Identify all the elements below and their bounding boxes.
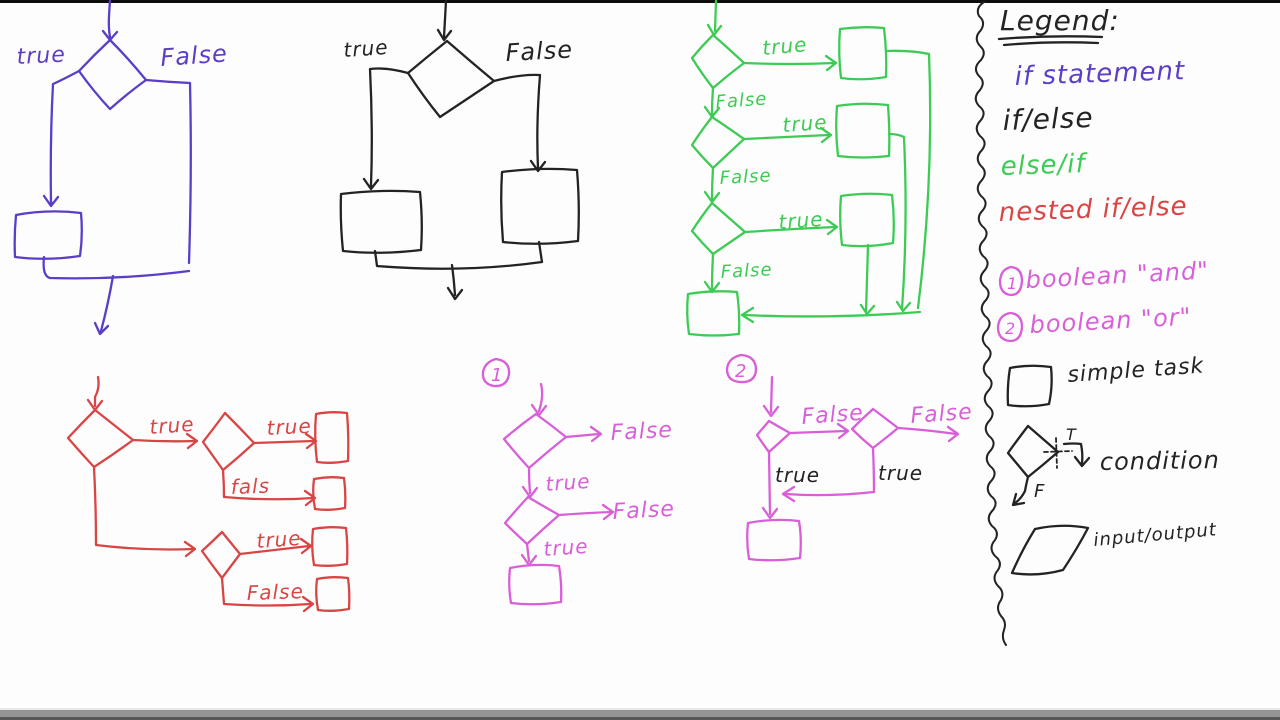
true-label-2: true <box>782 110 829 137</box>
entry-arrow <box>88 377 102 410</box>
condition-label: condition <box>1100 446 1220 476</box>
entry-arrow <box>764 377 778 416</box>
condition-diamond-1 <box>504 414 566 468</box>
wavy-divider <box>976 2 1006 645</box>
condition-diamond-2 <box>692 117 744 168</box>
false-arrow-2 <box>559 505 613 519</box>
task-box-1 <box>315 412 348 463</box>
condition-t-label: T <box>1066 425 1077 444</box>
true-label-1: true <box>149 412 196 439</box>
whiteboard-video-frame: true False true False <box>0 0 1280 720</box>
boolean-or-flowchart: 2 False False true true <box>727 355 974 560</box>
true-arrow-1 <box>744 56 836 70</box>
legend-panel: Legend: if statement if/else else/if nes… <box>976 2 1220 645</box>
condition-diamond <box>408 41 494 117</box>
input-output-label: input/output <box>1093 519 1218 551</box>
legend-number-2: 2 <box>1005 319 1016 338</box>
if-statement-flowchart: true False <box>15 1 229 334</box>
task-box-3 <box>840 194 894 246</box>
true-arrow-1 <box>523 468 537 497</box>
true-label-1: true <box>545 469 592 496</box>
false-arrow-1 <box>566 427 601 441</box>
outer-false-line <box>94 467 195 556</box>
simple-task-label: simple task <box>1067 353 1206 388</box>
true-branch-line <box>364 69 408 190</box>
entry-arrow <box>708 1 721 35</box>
simple-task-symbol <box>1008 366 1052 407</box>
true-branch-line <box>44 71 79 206</box>
false-label-1: False <box>801 401 865 430</box>
task1-exit-line <box>886 51 930 308</box>
task-box-2 <box>313 477 345 510</box>
condition-diamond <box>79 40 146 109</box>
true-label-3: true <box>256 526 303 553</box>
true-label-3: true <box>778 207 825 234</box>
true-label-2: true <box>543 534 590 561</box>
false-branch-line <box>494 75 545 171</box>
exit-arrow <box>95 276 113 334</box>
condition-diamond-2 <box>203 413 254 470</box>
legend-title: Legend: <box>1000 4 1120 37</box>
nested-if-else-flowchart: true true fals true False <box>68 377 349 611</box>
if-else-flowchart: true False <box>341 1 579 299</box>
legend-item-boolean-or: boolean "or" <box>1029 303 1192 339</box>
task-box <box>15 211 82 258</box>
entry-arrow <box>532 384 546 415</box>
merge-line <box>375 242 542 269</box>
false-branch-line <box>146 80 191 263</box>
true-label: true <box>343 35 390 62</box>
task-box <box>509 565 561 604</box>
exit-arrow <box>448 265 462 299</box>
number-label: 2 <box>735 361 747 382</box>
false-arrow-2 <box>898 427 958 441</box>
false-label-3: False <box>720 259 773 283</box>
condition-true-arrow <box>1064 444 1089 467</box>
entry-arrow <box>438 1 451 40</box>
false-label: False <box>159 39 228 72</box>
true-label-2: true <box>266 414 312 440</box>
boolean-and-flowchart: 1 False true False true <box>483 359 676 604</box>
legend-item-if-statement: if statement <box>1014 56 1185 92</box>
else-if-flowchart: true False true False true False <box>687 1 930 336</box>
legend-title-underline <box>999 36 1102 45</box>
task2-exit-line <box>889 134 906 309</box>
condition-diamond-1 <box>692 35 744 88</box>
true-task-box <box>341 191 422 253</box>
task-box-4 <box>316 577 349 611</box>
false-label-1: False <box>715 88 768 113</box>
legend-item-nested-if-else: nested if/else <box>998 191 1188 228</box>
fals-label: fals <box>230 474 270 499</box>
task-box <box>747 520 801 560</box>
true-label-2: true <box>878 461 923 485</box>
input-output-symbol <box>1012 526 1088 575</box>
true-label: true <box>16 42 66 70</box>
condition-diamond-1 <box>757 421 790 452</box>
condition-diamond-3 <box>692 203 745 254</box>
false-arrow-3 <box>705 254 719 292</box>
condition-false-arrow <box>1013 477 1028 505</box>
whiteboard-canvas: true False true False <box>0 0 1280 720</box>
entry-arrow <box>103 1 117 40</box>
final-task-box <box>687 291 739 335</box>
task-box-1 <box>839 27 886 79</box>
true-label-1: true <box>775 463 820 487</box>
false-label-2: False <box>612 497 675 525</box>
legend-item-else-if: else/if <box>1000 149 1089 182</box>
task-box-2 <box>836 104 889 158</box>
number-label: 1 <box>491 365 503 386</box>
false-label-2: False <box>719 165 772 189</box>
false-arrow-2 <box>705 168 719 202</box>
false-task-box <box>501 169 579 244</box>
false-label: False <box>505 35 574 66</box>
condition-f-label: F <box>1034 481 1045 502</box>
true-arrow-2 <box>522 544 536 565</box>
legend-item-boolean-and: boolean "and" <box>1025 256 1210 294</box>
legend-item-if-else: if/else <box>1002 101 1094 137</box>
condition-diamond-1 <box>68 410 133 467</box>
legend-number-1: 1 <box>1007 274 1018 293</box>
true-label-1: true <box>761 32 808 60</box>
false-label: False <box>246 579 304 605</box>
task-box-3 <box>312 527 347 566</box>
false-label-1: False <box>610 418 673 446</box>
false-label-2: False <box>910 400 974 429</box>
task3-exit-line <box>866 245 868 312</box>
letterbox-bottom-bar <box>0 708 1280 720</box>
condition-diamond-3 <box>202 532 240 578</box>
merge-line <box>742 302 920 322</box>
merge-line <box>44 257 189 278</box>
